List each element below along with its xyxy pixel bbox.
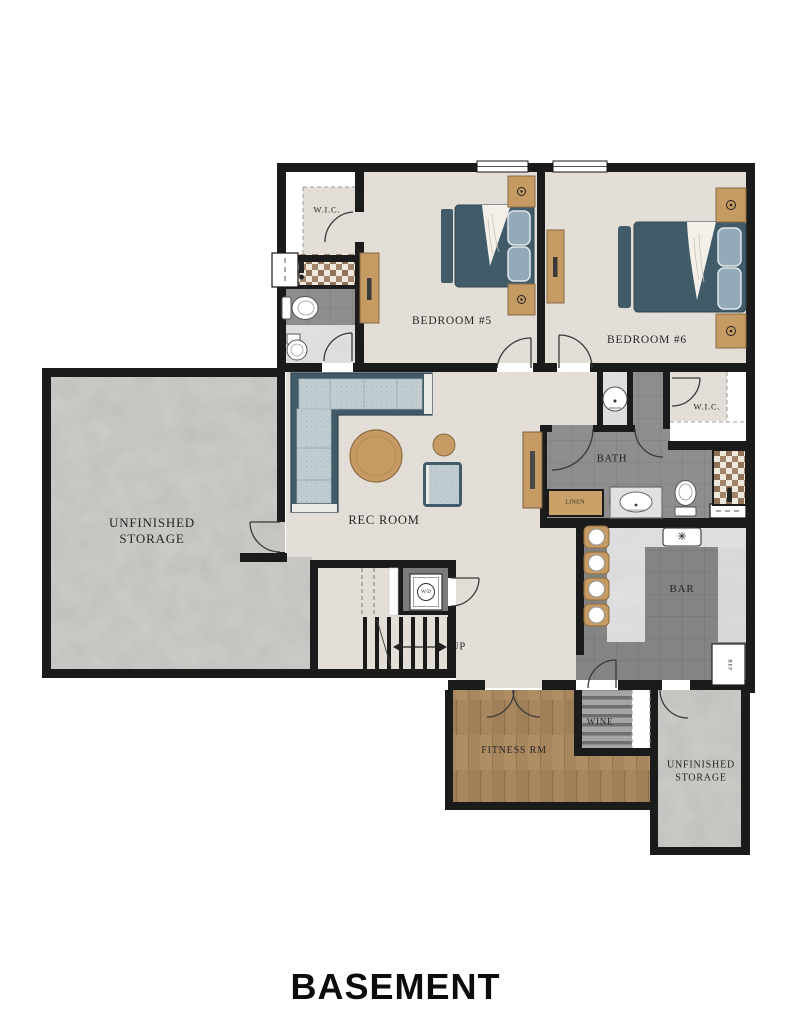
coffee-table bbox=[350, 430, 402, 482]
room-label-wine: WINE bbox=[587, 716, 614, 727]
room-label-linen: LINEN bbox=[565, 499, 585, 507]
washer-dryer-label: W/D bbox=[421, 589, 431, 595]
bed-bedroom5 bbox=[441, 205, 534, 287]
toilet-bath bbox=[675, 481, 696, 517]
room-label-storage-lower: UNFINISHED STORAGE bbox=[651, 760, 751, 785]
room-label-wic-right: W.I.C. bbox=[694, 402, 721, 413]
round-sink-bath bbox=[603, 387, 627, 411]
ottoman bbox=[423, 462, 462, 507]
window-bedroom6 bbox=[553, 161, 607, 172]
room-label-storage-left: UNFINISHED STORAGE bbox=[87, 515, 217, 548]
toilet-upper-bath bbox=[282, 297, 318, 320]
plan-title: BASEMENT bbox=[0, 966, 791, 1008]
room-label-rec-room: REC ROOM bbox=[348, 513, 419, 529]
floor-plan-graphics bbox=[0, 0, 791, 1024]
room-label-bar: BAR bbox=[669, 583, 694, 597]
vanity-sink-bath bbox=[610, 487, 662, 518]
bar-sink bbox=[663, 528, 701, 546]
room-label-wic-upper: W.I.C. bbox=[314, 205, 341, 216]
side-table bbox=[433, 434, 455, 456]
room-label-bedroom6: BEDROOM #6 bbox=[607, 333, 687, 347]
room-label-bath: BATH bbox=[597, 452, 628, 465]
floor-plan-page: W.I.C. BEDROOM #5 BEDROOM #6 W.I.C. BATH… bbox=[0, 0, 791, 1024]
shower-fixture-upper bbox=[299, 261, 304, 280]
window-bath-right bbox=[710, 504, 746, 518]
room-label-fitness: FITNESS RM bbox=[481, 745, 547, 758]
stairs-up-label: UP bbox=[451, 640, 466, 653]
dresser-bedroom5 bbox=[360, 253, 379, 323]
refrigerator-label: REF bbox=[725, 659, 732, 671]
bed-bedroom6 bbox=[618, 222, 746, 312]
shower-bath bbox=[713, 450, 746, 505]
window-bath-upper bbox=[272, 253, 298, 287]
dresser-bedroom6 bbox=[547, 230, 564, 303]
window-bedroom5 bbox=[477, 161, 528, 172]
room-label-bedroom5: BEDROOM #5 bbox=[412, 314, 492, 328]
console-table bbox=[523, 432, 542, 508]
